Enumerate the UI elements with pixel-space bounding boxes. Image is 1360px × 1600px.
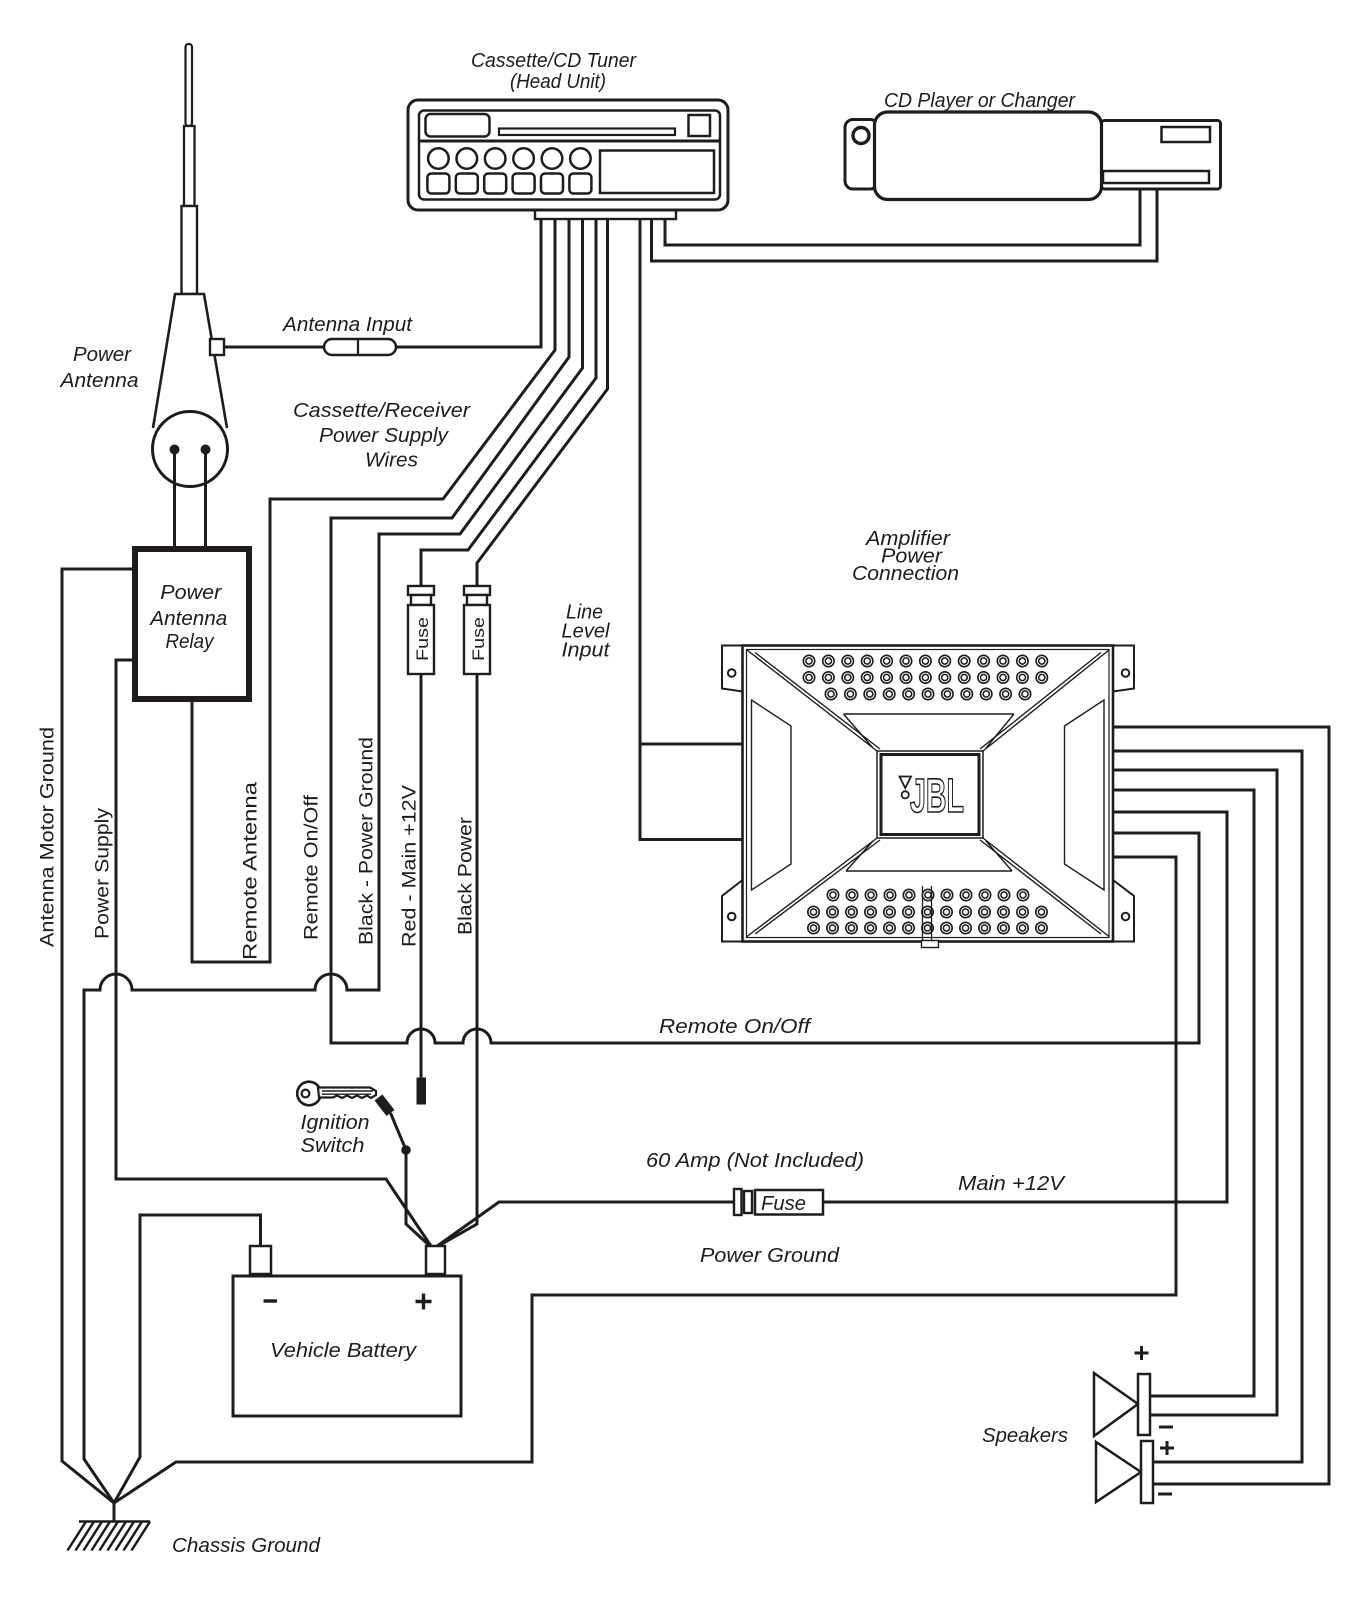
svg-text:Black Power: Black Power [456, 816, 477, 935]
svg-text:JBL: JBL [910, 770, 964, 823]
svg-text:Remote Antenna: Remote Antenna [241, 781, 262, 960]
svg-text:Power Ground: Power Ground [700, 1245, 840, 1267]
svg-text:Antenna: Antenna [59, 370, 138, 392]
svg-text:Power: Power [73, 344, 132, 366]
svg-text:(Head Unit): (Head Unit) [510, 71, 606, 93]
svg-text:Black - Power Ground: Black - Power Ground [357, 737, 378, 945]
svg-text:Switch: Switch [301, 1135, 365, 1157]
svg-text:Relay: Relay [166, 631, 215, 653]
svg-text:Remote On/Off: Remote On/Off [659, 1016, 813, 1038]
svg-text:60 Amp (Not Included): 60 Amp (Not Included) [646, 1150, 864, 1172]
svg-text:Power Supply: Power Supply [93, 807, 114, 939]
svg-text:Ignition: Ignition [301, 1112, 370, 1134]
svg-text:Input: Input [562, 640, 612, 662]
svg-text:Fuse: Fuse [761, 1193, 806, 1215]
svg-text:Chassis Ground: Chassis Ground [172, 1535, 321, 1557]
svg-text:Fuse: Fuse [413, 617, 432, 661]
svg-text:Antenna Input: Antenna Input [282, 314, 414, 336]
svg-text:Wires: Wires [365, 450, 418, 472]
svg-text:Vehicle Battery: Vehicle Battery [270, 1340, 417, 1362]
svg-text:Antenna Motor Ground: Antenna Motor Ground [38, 727, 59, 947]
svg-text:Main +12V: Main +12V [958, 1173, 1066, 1195]
svg-text:Cassette/CD Tuner: Cassette/CD Tuner [471, 50, 637, 72]
svg-text:Speakers: Speakers [982, 1425, 1068, 1447]
svg-text:Fuse: Fuse [469, 617, 488, 661]
svg-text:CD Player or Changer: CD Player or Changer [884, 90, 1076, 112]
svg-text:Connection: Connection [852, 563, 959, 585]
svg-text:Antenna: Antenna [149, 608, 227, 630]
svg-text:Red - Main +12V: Red - Main +12V [400, 785, 421, 947]
svg-text:Remote On/Off: Remote On/Off [302, 794, 323, 940]
svg-text:Cassette/Receiver: Cassette/Receiver [293, 400, 471, 422]
svg-text:Power Supply: Power Supply [319, 425, 449, 447]
svg-text:Power: Power [160, 582, 222, 604]
